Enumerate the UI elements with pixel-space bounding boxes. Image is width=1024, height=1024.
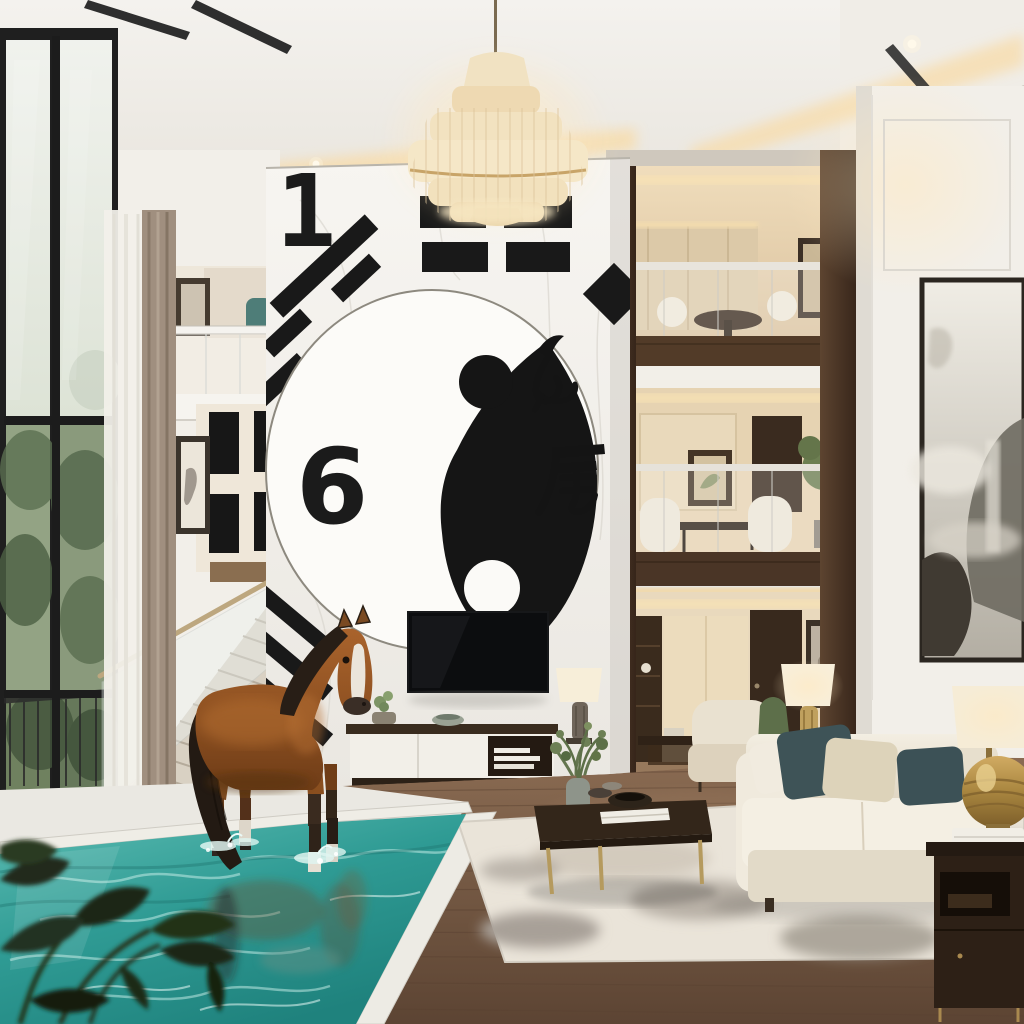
side-table bbox=[926, 828, 1024, 1022]
teal-pillow bbox=[896, 746, 966, 806]
glass-railing bbox=[610, 270, 856, 338]
wall-black-panel bbox=[254, 492, 268, 551]
interior-scene: 1 6 bbox=[0, 0, 1024, 1024]
horse-eye bbox=[343, 657, 350, 664]
balcony-glass-railing bbox=[172, 334, 280, 396]
yang-dot bbox=[464, 560, 520, 616]
hexagram-bar bbox=[422, 242, 488, 272]
curtains bbox=[104, 210, 176, 806]
wall-number-six: 6 bbox=[296, 446, 368, 529]
beige-pillow bbox=[822, 737, 899, 803]
wall-number-one: 1 bbox=[276, 172, 336, 252]
scene-canvas bbox=[0, 0, 1024, 1024]
ink-wash-painting bbox=[910, 280, 1024, 660]
horse-muzzle bbox=[343, 697, 371, 715]
stair-side-art bbox=[176, 436, 210, 534]
wall-wash-light bbox=[785, 75, 1024, 295]
glass-railing bbox=[610, 471, 856, 556]
wall-black-panel bbox=[209, 412, 239, 474]
mezzanine-level-2 bbox=[610, 388, 856, 556]
yin-dot bbox=[459, 355, 513, 409]
wall-black-panel bbox=[209, 494, 239, 553]
upper-balcony bbox=[172, 266, 280, 420]
hexagram-bar bbox=[506, 242, 570, 272]
